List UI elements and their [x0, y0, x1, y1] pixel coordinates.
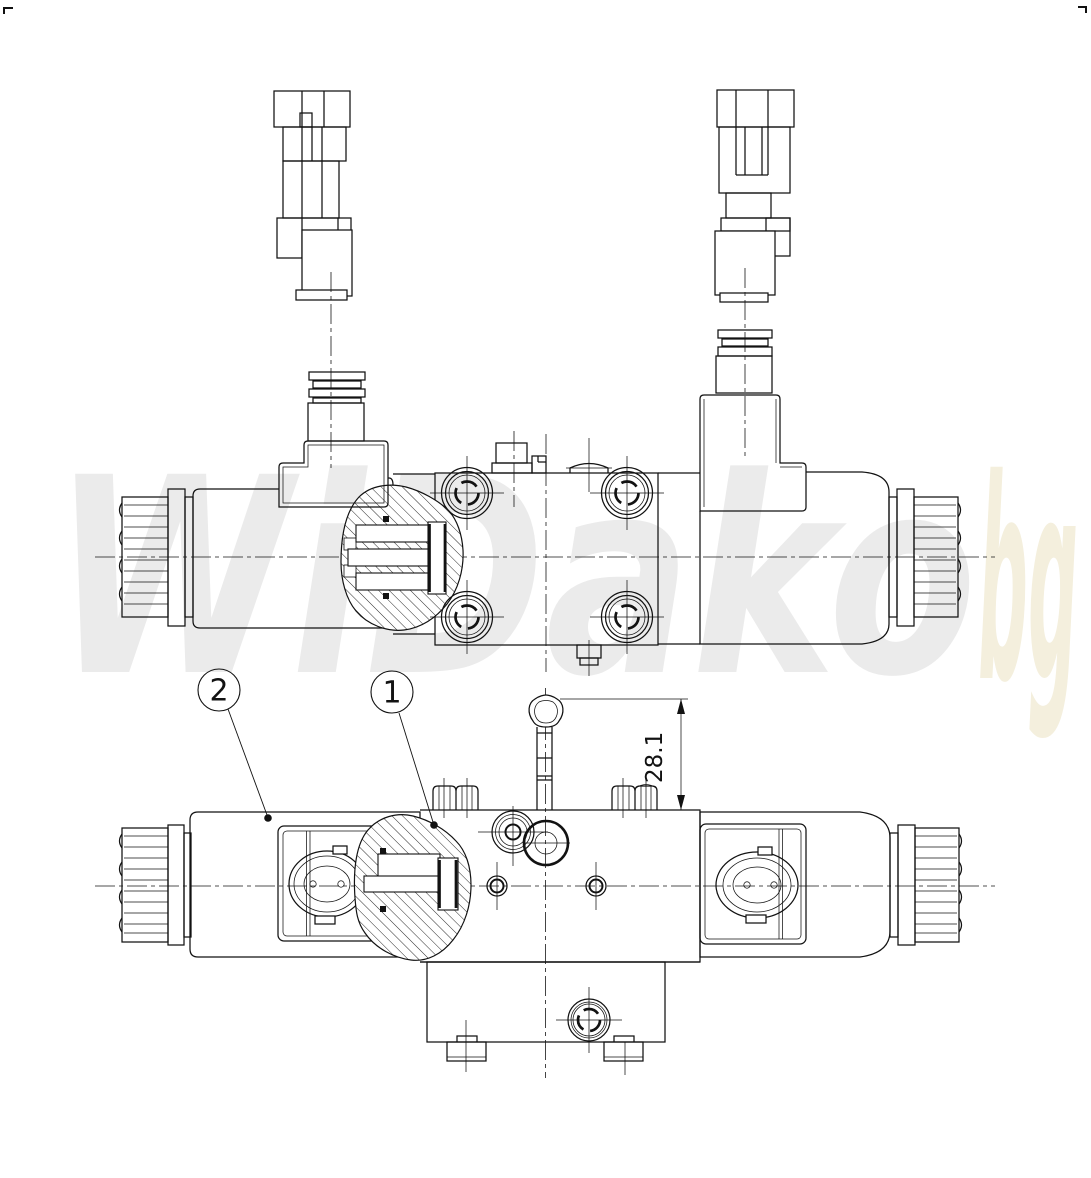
leader-dot [430, 821, 438, 829]
left-connector-plug [274, 91, 352, 468]
mounting-studs [433, 778, 657, 818]
bottom-view [95, 688, 995, 1078]
section-cutaway-plan [354, 815, 471, 961]
right-knurled-nut-plan [890, 825, 962, 945]
socket-screw [556, 987, 622, 1053]
right-connector-face [700, 824, 806, 944]
dimension-value: 28.1 [642, 732, 668, 783]
port-boss-bold [524, 821, 570, 865]
right-coil-housing-plan [700, 812, 890, 957]
corner-marks [4, 7, 1086, 14]
left-knurled-nut-plan [120, 825, 192, 945]
drawing-sheet: WiDako bg [0, 0, 1091, 1178]
right-connector-plug [715, 90, 794, 458]
gauge-port [586, 862, 606, 910]
watermark-suffix: bg [978, 420, 1078, 744]
leader-dot [264, 814, 272, 822]
gauge-port [487, 862, 507, 910]
balloon-1-label: 1 [382, 676, 401, 711]
balloon-2-label: 2 [209, 674, 228, 709]
override-lever [529, 695, 563, 810]
subplate-block [427, 962, 665, 1075]
watermark-text: WiDako [52, 421, 977, 737]
